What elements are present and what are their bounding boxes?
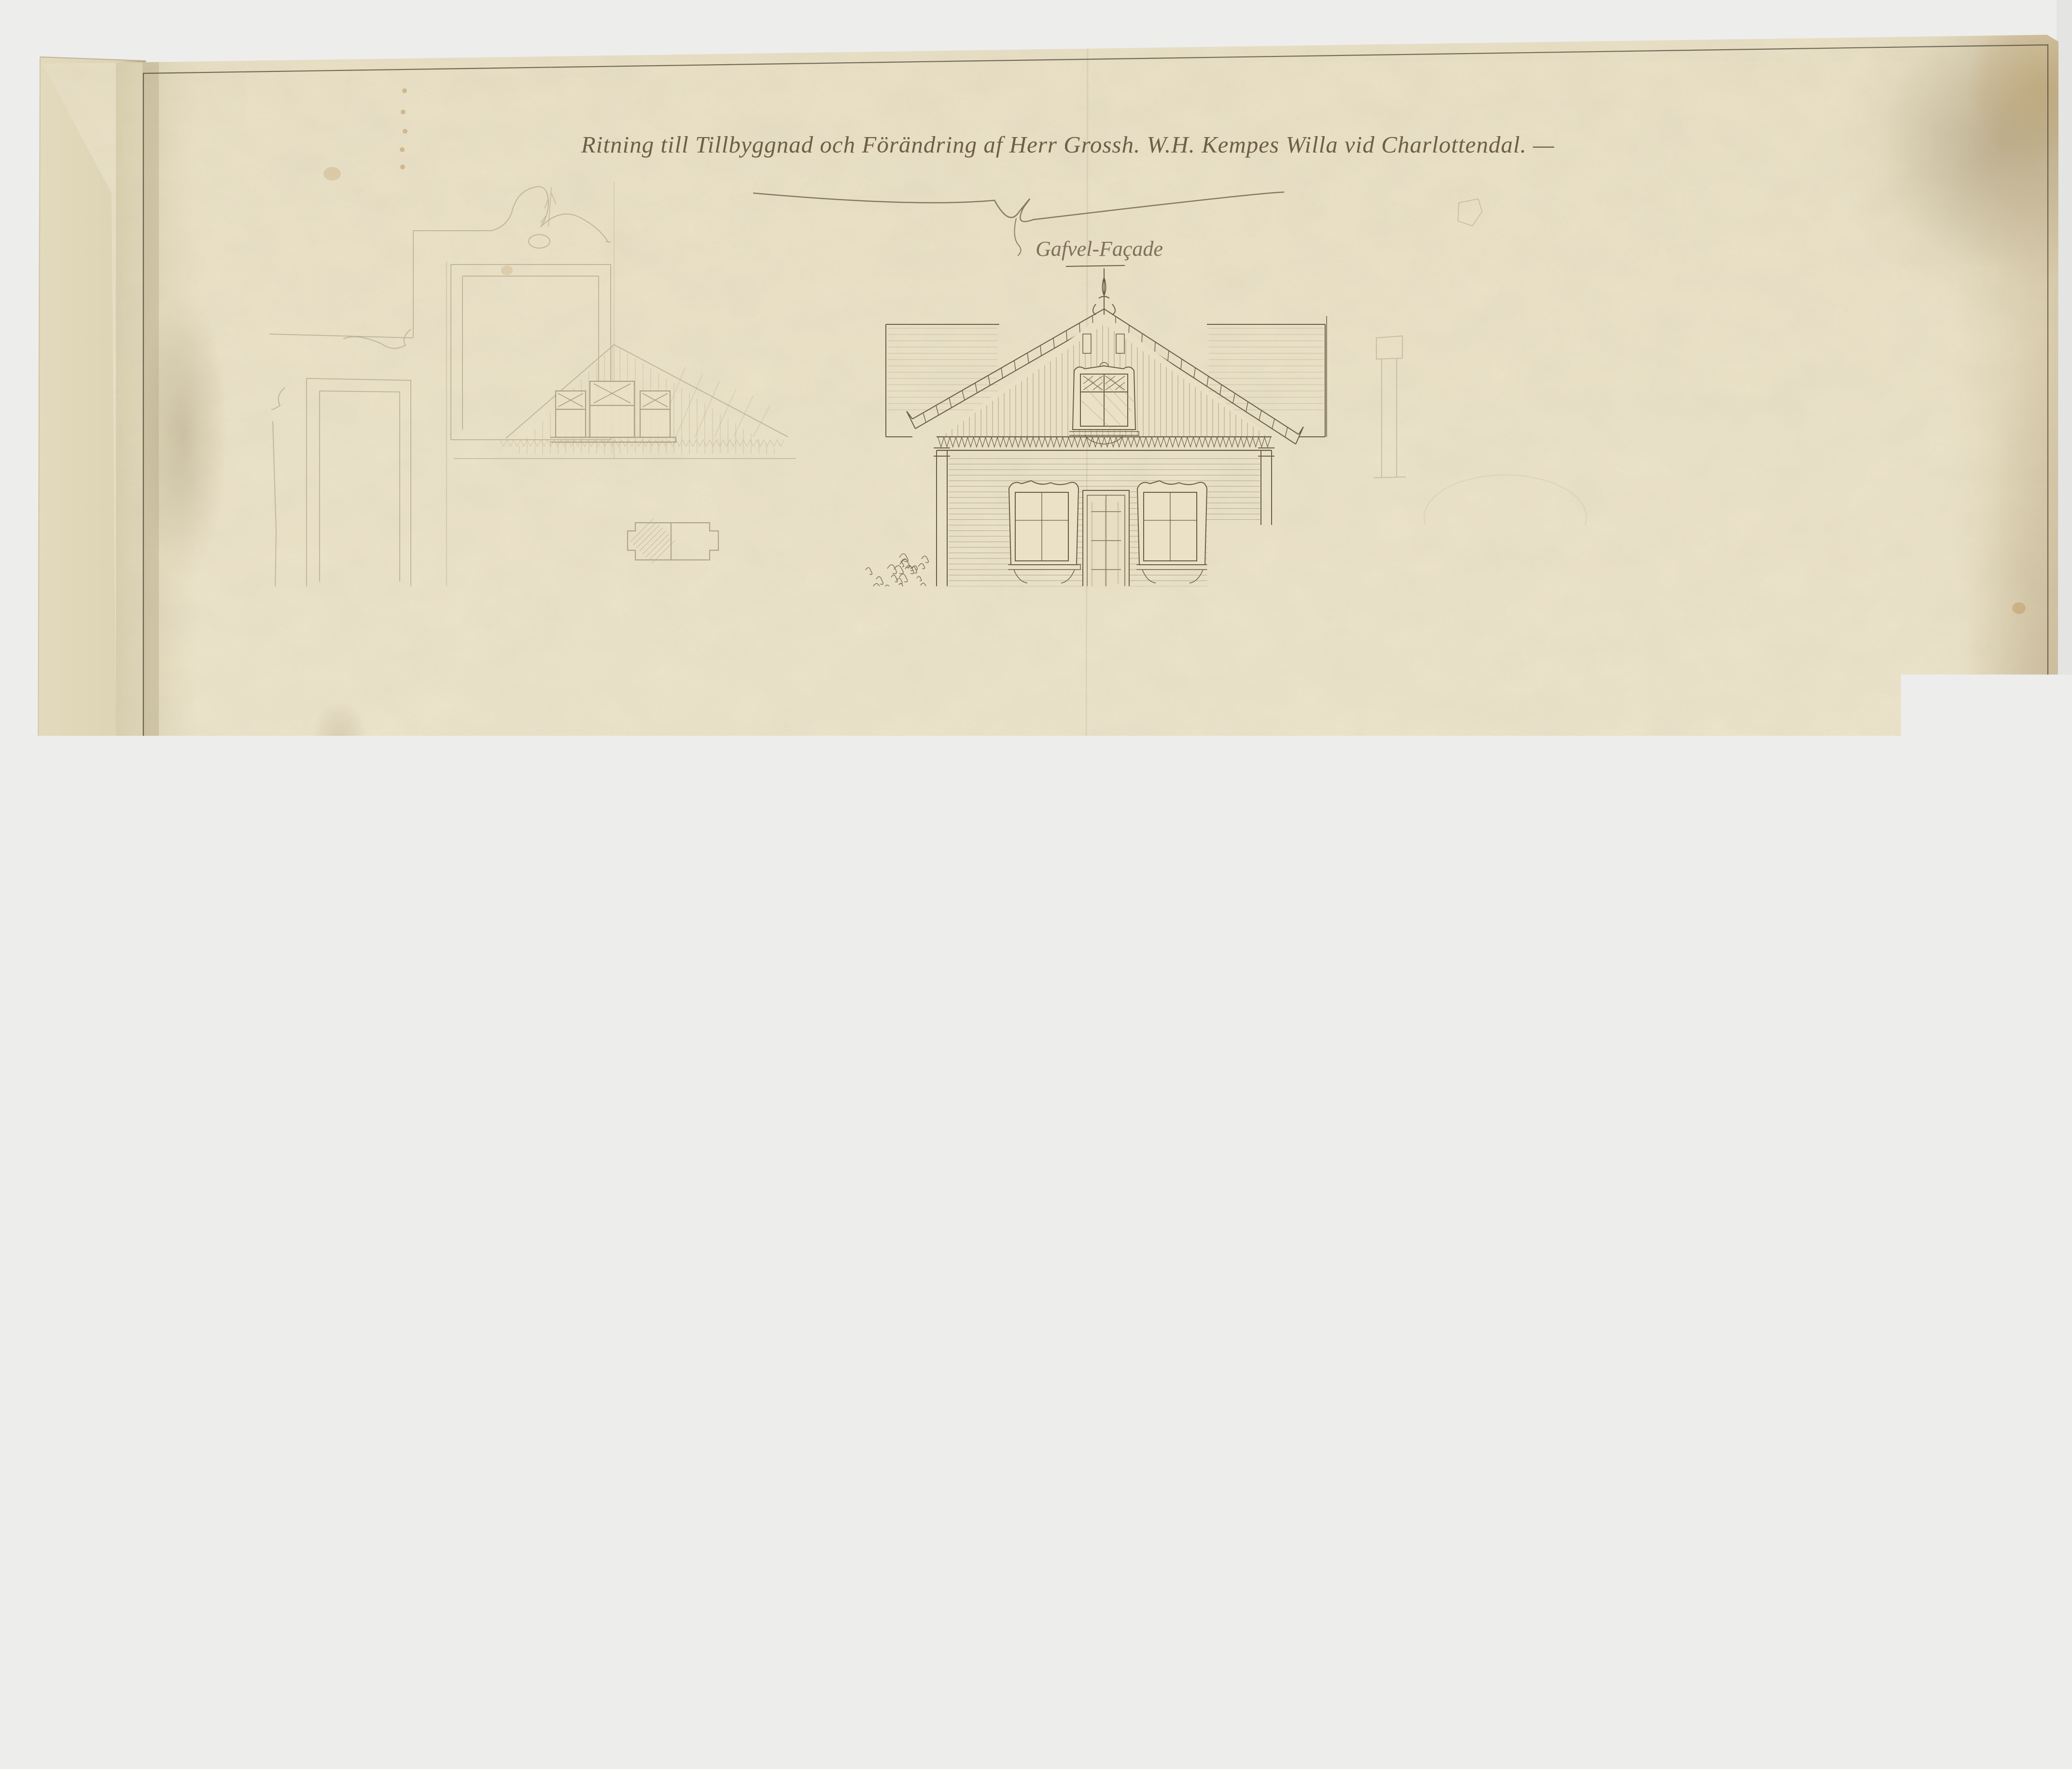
svg-text:6: 6 — [730, 1680, 736, 1694]
svg-text:Kontor: Kontor — [1856, 1522, 1900, 1539]
svg-text:Toilett.—: Toilett.— — [1372, 1376, 1426, 1392]
svg-text:Garderob.: Garderob. — [1382, 1287, 1442, 1303]
svg-text:Sängkamm.: Sängkamm. — [1853, 1420, 1927, 1437]
svg-text:Garderob—: Garderob— — [1864, 1292, 1938, 1309]
svg-text:10: 10 — [921, 1678, 936, 1696]
svg-text:3: 3 — [768, 1680, 774, 1694]
svg-text:60: 60 — [1517, 1678, 1532, 1696]
svg-text:Fot.: Fot. — [1549, 1674, 1578, 1693]
svg-text:skänk: skänk — [588, 1489, 610, 1500]
svg-text:Façade åt Wägen: Façade åt Wägen — [554, 650, 718, 675]
svg-text:Passage: Passage — [729, 1457, 773, 1471]
svg-text:ks w: ks w — [941, 1108, 962, 1121]
svg-text:Sängkamm: Sängkamm — [1213, 1418, 1283, 1435]
svg-text:Pigkamm: Pigkamm — [1534, 1356, 1600, 1376]
svg-text:30: 30 — [1159, 1678, 1175, 1696]
svg-text:10: 10 — [675, 1680, 688, 1694]
svg-text:Skafferi: Skafferi — [975, 1276, 1016, 1291]
svg-text:Salon.: Salon. — [289, 1411, 331, 1429]
svg-text:Plan af Winden: Plan af Winden — [1495, 1191, 1633, 1215]
svg-text:9: 9 — [691, 1680, 698, 1694]
svg-text:5: 5 — [742, 1680, 749, 1694]
svg-text:Herrns Rum.: Herrns Rum. — [459, 1512, 545, 1530]
svg-text:1: 1 — [794, 1680, 800, 1694]
svg-text:Gästrum: Gästrum — [766, 1525, 817, 1541]
svg-text:V e r a n d a: V e r a n d a — [554, 1618, 693, 1636]
svg-text:Handkamm: Handkamm — [881, 1278, 941, 1293]
svg-text:veranda: veranda — [604, 1198, 672, 1214]
svg-text:Garderob: Garderob — [1721, 1292, 1777, 1308]
svg-text:Plan af BottenWåningen: Plan af BottenWåningen — [518, 1109, 737, 1133]
svg-text:8: 8 — [704, 1680, 711, 1694]
svg-text:W ind. —: W ind. — — [1485, 1488, 1585, 1510]
svg-text:40: 40 — [1278, 1678, 1294, 1696]
svg-text:20: 20 — [1040, 1678, 1055, 1696]
svg-text:Ritning till Tillbyggnad och F: Ritning till Tillbyggnad och Förändring … — [581, 131, 1554, 158]
svg-text:M: M — [893, 624, 906, 640]
svg-text:2: 2 — [781, 1680, 787, 1694]
svg-text:0: 0 — [806, 1680, 812, 1694]
svg-text:50: 50 — [1398, 1678, 1413, 1696]
svg-text:Matsal. —: Matsal. — — [544, 1329, 625, 1351]
svg-text:Kök.: Kök. — [778, 1330, 811, 1350]
svg-text:Gafvel-Façade: Gafvel-Façade — [1036, 237, 1163, 261]
svg-text:7: 7 — [717, 1680, 724, 1694]
svg-text:e t c: e t c — [1125, 631, 1146, 645]
svg-text:Gästrum: Gästrum — [938, 1468, 992, 1485]
svg-text:Ve: Ve — [270, 1110, 281, 1123]
svg-text:Kontor: Kontor — [1220, 1527, 1265, 1544]
svg-text:Garderob: Garderob — [1225, 1283, 1285, 1301]
svg-text:4: 4 — [755, 1680, 761, 1694]
svg-text:W: W — [1023, 623, 1037, 639]
svg-text:Tambur: Tambur — [621, 1527, 669, 1544]
svg-text:Façade åt Trädgården: Façade åt Trädgården — [1467, 650, 1675, 675]
svg-text:Toilett.: Toilett. — [1722, 1376, 1762, 1392]
svg-text:S: S — [958, 621, 966, 637]
svg-text:Förstuga: Förstuga — [946, 1346, 1007, 1364]
